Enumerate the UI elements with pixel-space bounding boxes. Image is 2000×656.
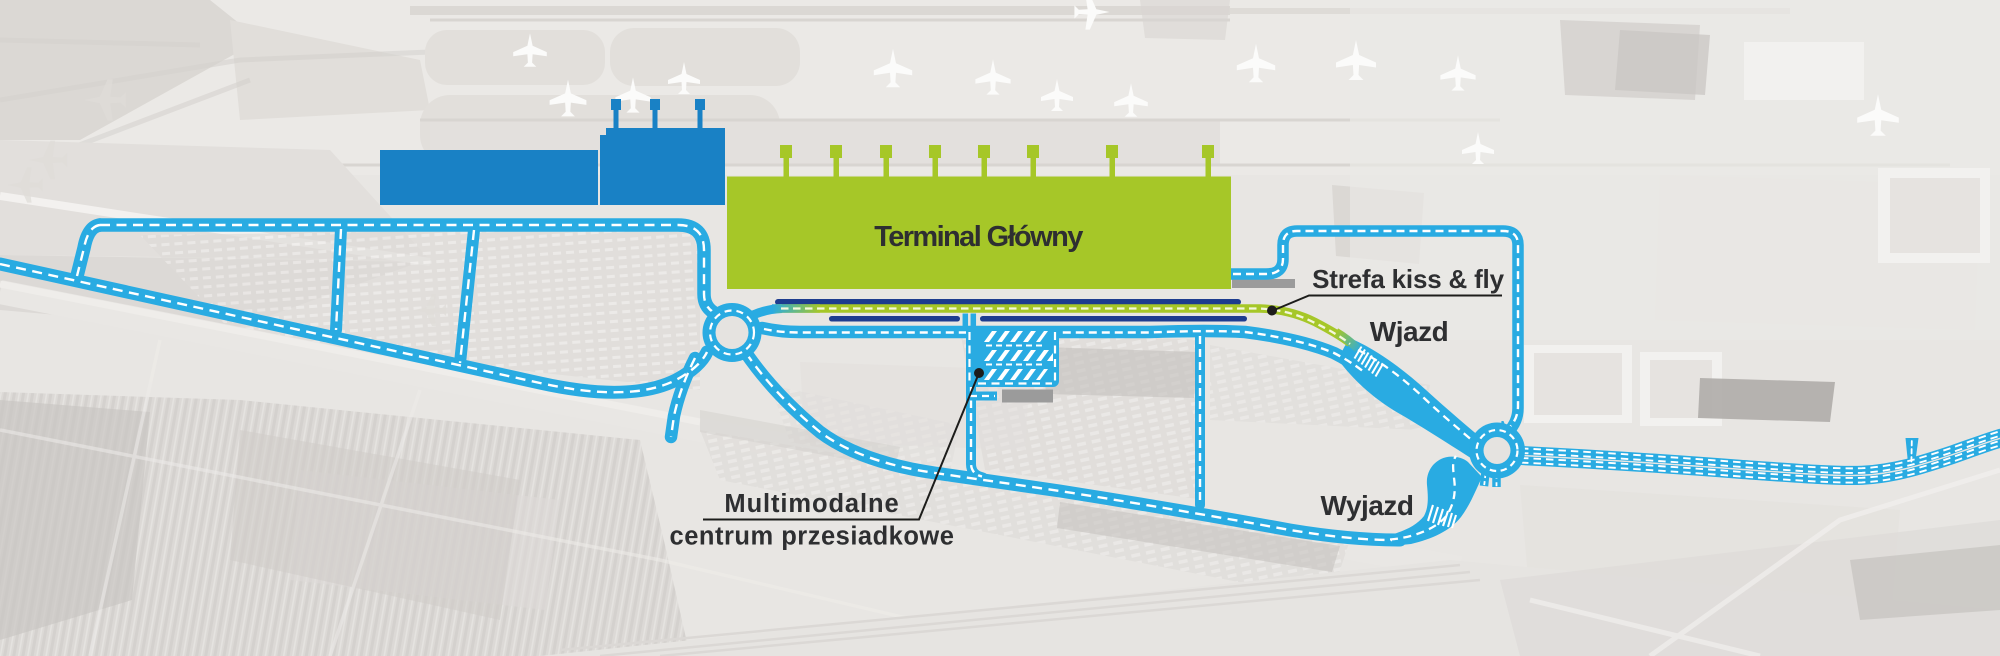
svg-text:Wjazd: Wjazd [1370, 316, 1448, 347]
svg-text:Multimodalne: Multimodalne [724, 490, 899, 518]
svg-text:Terminal Główny: Terminal Główny [874, 221, 1083, 253]
svg-text:Wyjazd: Wyjazd [1321, 490, 1414, 521]
svg-text:centrum przesiadkowe: centrum przesiadkowe [670, 523, 955, 551]
svg-text:Strefa kiss & fly: Strefa kiss & fly [1312, 264, 1504, 294]
